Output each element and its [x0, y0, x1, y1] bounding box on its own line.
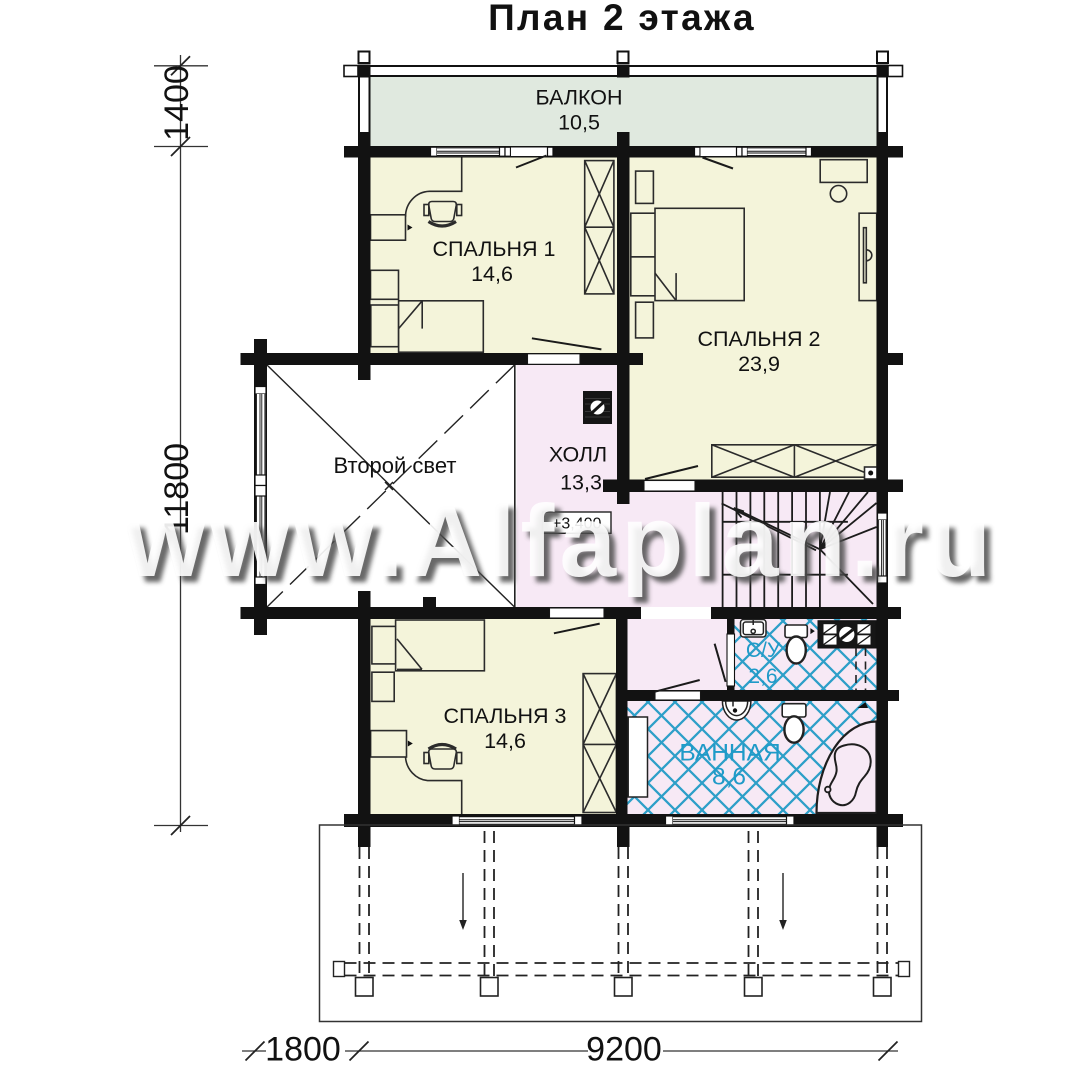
svg-text:14,6: 14,6 — [484, 729, 526, 753]
svg-text:СПАЛЬНЯ 3: СПАЛЬНЯ 3 — [444, 704, 567, 728]
svg-text:1400: 1400 — [158, 65, 196, 141]
svg-text:СПАЛЬНЯ 2: СПАЛЬНЯ 2 — [698, 327, 821, 351]
svg-text:ВАННАЯ: ВАННАЯ — [679, 740, 780, 767]
svg-text:План 2 этажа: План 2 этажа — [488, 0, 756, 38]
svg-text:23,9: 23,9 — [738, 352, 780, 376]
svg-text:www.Alfaplan.ru: www.Alfaplan.ru — [125, 484, 996, 598]
svg-text:2,6: 2,6 — [748, 665, 777, 688]
svg-text:8,6: 8,6 — [712, 764, 746, 791]
svg-text:Второй свет: Второй свет — [334, 453, 457, 478]
svg-text:БАЛКОН: БАЛКОН — [535, 86, 622, 110]
svg-text:9200: 9200 — [586, 1031, 662, 1069]
svg-text:14,6: 14,6 — [471, 262, 513, 286]
svg-text:С/У: С/У — [746, 639, 781, 662]
svg-text:10,5: 10,5 — [558, 111, 600, 135]
svg-text:1800: 1800 — [265, 1031, 341, 1069]
svg-text:ХОЛЛ: ХОЛЛ — [549, 443, 607, 467]
svg-text:СПАЛЬНЯ 1: СПАЛЬНЯ 1 — [433, 237, 556, 261]
